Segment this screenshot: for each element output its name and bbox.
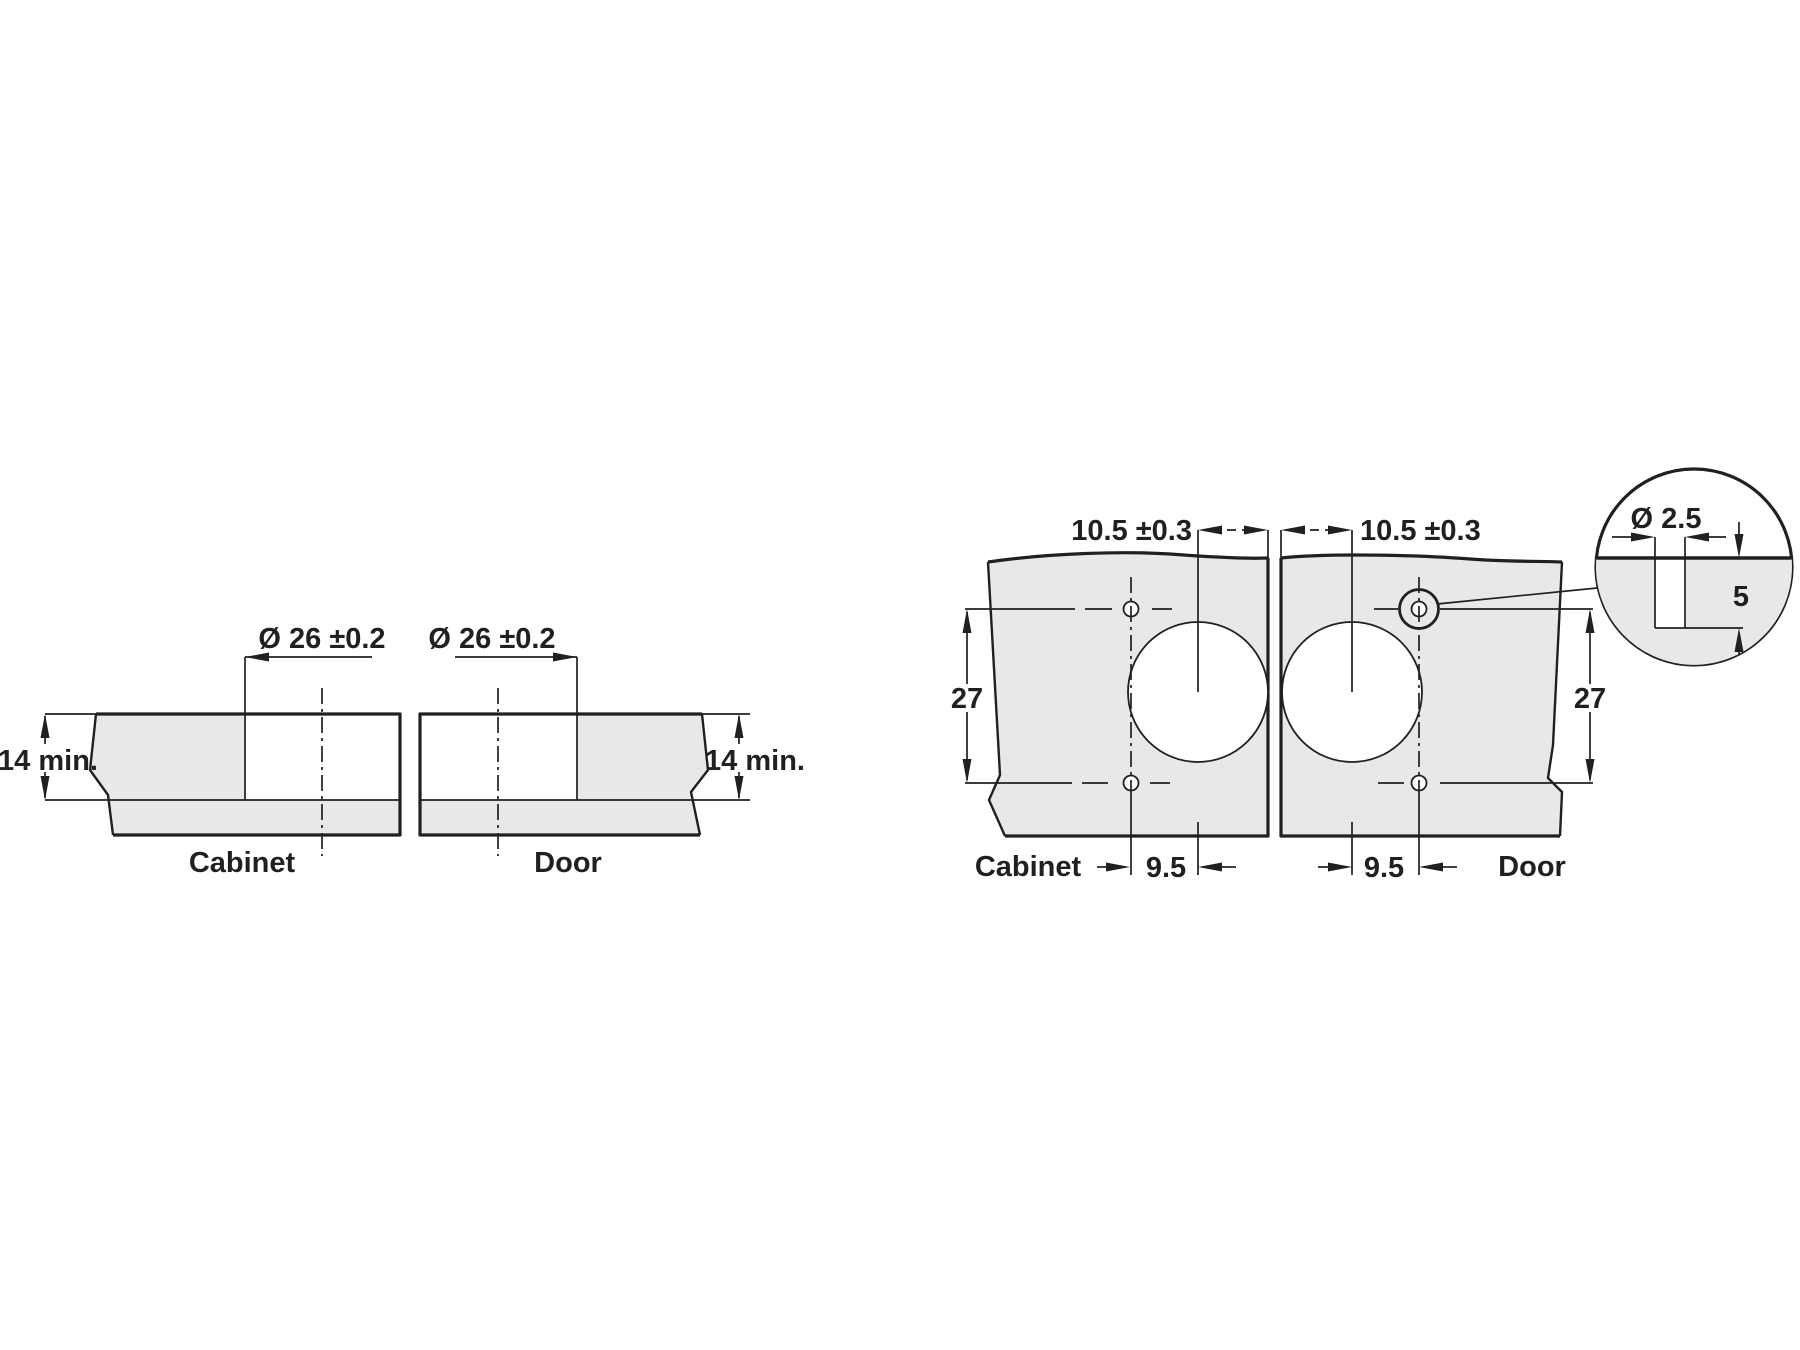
plan-cabinet-screw-offset-label: 9.5 bbox=[1146, 852, 1186, 884]
section-cabinet-thickness-label: 14 min. bbox=[0, 745, 98, 777]
section-door-caption: Door bbox=[534, 847, 602, 879]
section-door-panel bbox=[420, 657, 750, 856]
section-door-hole-diameter-label: Ø 26 ±0.2 bbox=[428, 623, 555, 655]
section-cabinet-caption: Cabinet bbox=[189, 847, 296, 879]
section-door-thickness-label: 14 min. bbox=[705, 745, 805, 777]
plan-cabinet-edge-distance-label: 10.5 ±0.3 bbox=[1071, 515, 1192, 547]
plan-view: 10.5 ±0.3 10.5 ±0.3 27 27 bbox=[951, 469, 1792, 884]
section-cabinet-panel bbox=[45, 657, 400, 856]
plan-cabinet-caption: Cabinet bbox=[975, 851, 1082, 883]
plan-door-row-spacing-label: 27 bbox=[1574, 683, 1606, 715]
plan-cabinet-row-spacing-label: 27 bbox=[951, 683, 983, 715]
section-cabinet-thickness-dim: 14 min. bbox=[0, 714, 98, 800]
plan-door-panel bbox=[1281, 530, 1593, 875]
drilling-dimensions-diagram: Ø 26 ±0.2 Ø 26 ±0.2 14 min. 14 min. Cabi… bbox=[0, 0, 1800, 1350]
plan-door-caption: Door bbox=[1498, 851, 1566, 883]
section-door-thickness-dim: 14 min. bbox=[705, 714, 805, 800]
plan-door-edge-distance-dim: 10.5 ±0.3 bbox=[1281, 515, 1481, 547]
detail-pilot-hole bbox=[1655, 558, 1685, 628]
plan-door-screw-offset-label: 9.5 bbox=[1364, 852, 1404, 884]
plan-cabinet-row-spacing-dim: 27 bbox=[951, 609, 983, 783]
plan-door-edge-distance-label: 10.5 ±0.3 bbox=[1360, 515, 1481, 547]
detail-pilot-diameter-label: Ø 2.5 bbox=[1631, 503, 1702, 535]
detail-pilot-depth-label: 5 bbox=[1733, 581, 1749, 613]
section-view: Ø 26 ±0.2 Ø 26 ±0.2 14 min. 14 min. Cabi… bbox=[0, 623, 805, 879]
plan-cabinet-screw-offset-dim: 9.5 bbox=[1097, 852, 1236, 884]
plan-cabinet-edge-distance-dim: 10.5 ±0.3 bbox=[1071, 515, 1268, 547]
section-cabinet-hole-diameter-label: Ø 26 ±0.2 bbox=[258, 623, 385, 655]
section-door-hole-diameter-dim: Ø 26 ±0.2 bbox=[428, 623, 577, 662]
plan-door-row-spacing-dim: 27 bbox=[1574, 609, 1606, 783]
section-cabinet-hole-diameter-dim: Ø 26 ±0.2 bbox=[245, 623, 386, 662]
plan-cabinet-panel bbox=[965, 530, 1268, 875]
plan-door-screw-offset-dim: 9.5 bbox=[1318, 852, 1457, 884]
